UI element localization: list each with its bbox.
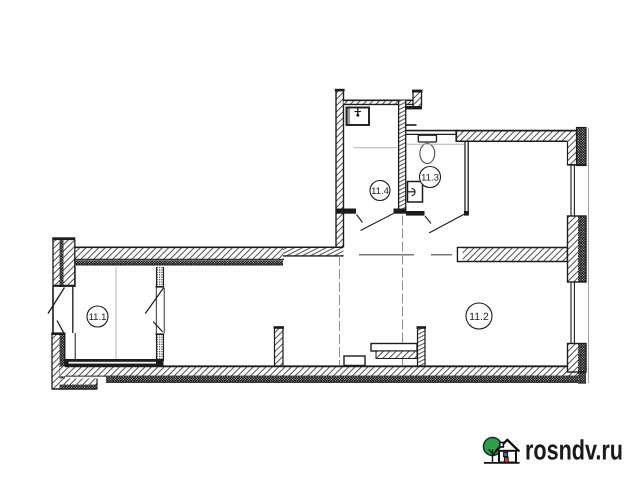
svg-text:11.4: 11.4 xyxy=(371,186,389,197)
svg-text:rosndv.ru: rosndv.ru xyxy=(525,435,623,466)
svg-text:11.1: 11.1 xyxy=(89,312,107,323)
svg-text:11.3: 11.3 xyxy=(421,173,439,184)
svg-text:11.2: 11.2 xyxy=(469,311,489,323)
